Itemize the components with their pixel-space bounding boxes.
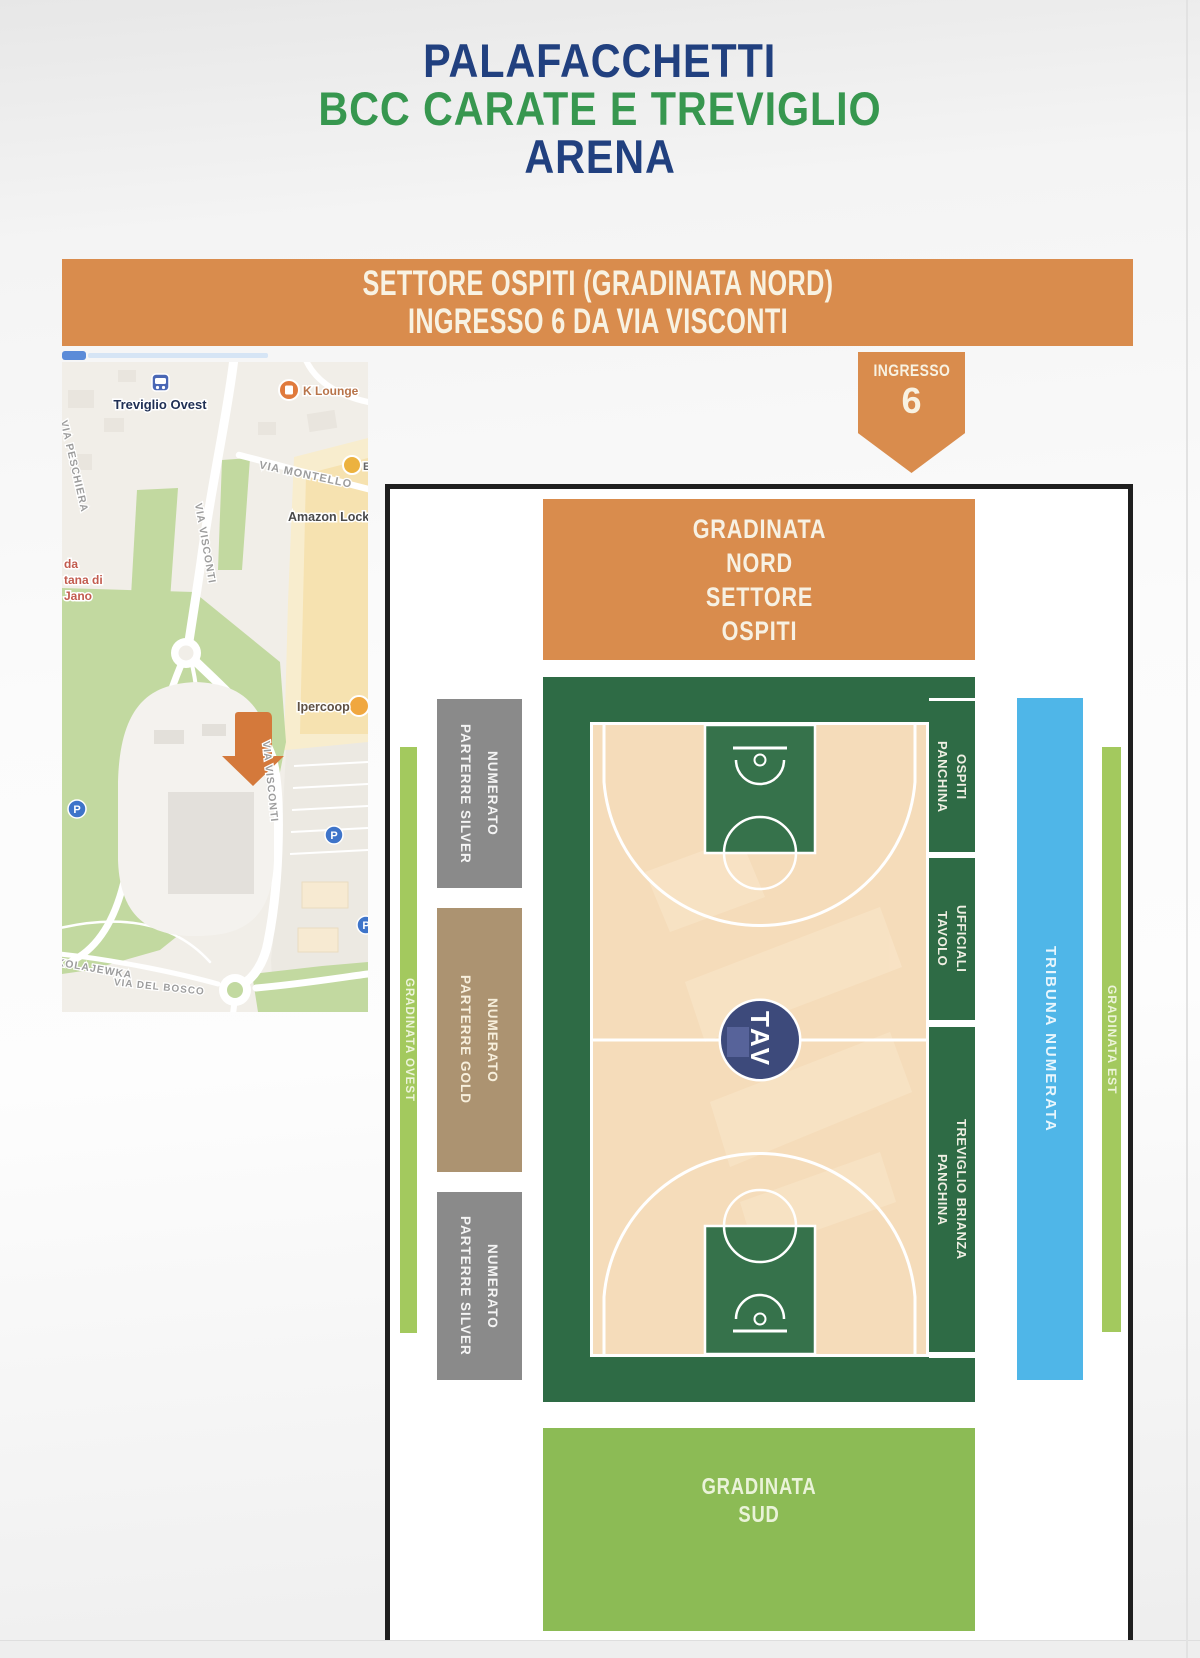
section-tavolo-ufficiali: TAVOLO UFFICIALI	[929, 858, 975, 1020]
map-arena-annex	[154, 730, 184, 744]
page-title-line3: ARENA	[0, 132, 1200, 182]
parterre-silver-top-line2: NUMERATO	[479, 699, 506, 888]
tavolo-line1: TAVOLO	[933, 858, 952, 1020]
page-title-line1: PALAFACCHETTI	[0, 36, 1200, 86]
gradinata-ovest-label: GRADINATA OVEST	[400, 747, 417, 1333]
gradinata-nord-line3: SETTORE	[692, 580, 826, 614]
section-gradinata-est: GRADINATA EST	[1102, 747, 1121, 1332]
map-label-place-red1: da	[64, 557, 78, 571]
map-ui-fragment	[62, 351, 86, 360]
gradinata-sud-line2: SUD	[586, 1500, 932, 1528]
entrance-badge-number: 6	[901, 381, 921, 421]
section-parterre-silver-top: PARTERRE SILVER NUMERATO	[437, 699, 522, 888]
section-tribuna-numerata: TRIBUNA NUMERATA	[1017, 698, 1083, 1380]
ec-poi-icon	[343, 456, 361, 474]
parterre-silver-bottom-line2: NUMERATO	[479, 1192, 506, 1380]
section-gradinata-sud: GRADINATA SUD	[543, 1428, 975, 1631]
panchina-ospiti-line1: PANCHINA	[933, 701, 952, 852]
ipercoop-poi-icon	[349, 696, 368, 716]
map-label-klounge: K Lounge	[303, 384, 359, 398]
map-label-ipercoop: Ipercoop	[297, 700, 350, 714]
section-parterre-silver-bottom: PARTERRE SILVER NUMERATO	[437, 1192, 522, 1380]
bench-separator	[929, 1020, 975, 1027]
section-panchina-ospiti: PANCHINA OSPITI	[929, 701, 975, 852]
parterre-gold-line2: NUMERATO	[479, 908, 506, 1172]
bench-separator	[929, 1352, 975, 1358]
section-gradinata-nord: GRADINATA NORD SETTORE OSPITI	[543, 499, 975, 660]
panchina-treviglio-line2: TREVIGLIO BRIANZA	[952, 1027, 971, 1352]
tavolo-line2: UFFICIALI	[952, 858, 971, 1020]
parterre-gold-line1: PARTERRE GOLD	[452, 908, 479, 1172]
parking-icon-letter: P	[73, 804, 80, 816]
panchina-ospiti-line2: OSPITI	[952, 701, 971, 852]
location-map: P P P Treviglio Ovest K Lounge Ec Amazon…	[62, 362, 368, 1012]
map-label-amazon: Amazon Locker	[288, 510, 368, 524]
map-ui-fragment-bar	[88, 353, 268, 358]
klounge-poi-icon	[279, 380, 299, 400]
center-logo-text: TAV	[721, 1001, 799, 1079]
map-label-place-red3: Jano	[64, 589, 92, 603]
parterre-silver-top-line1: PARTERRE SILVER	[452, 699, 479, 888]
sector-banner: SETTORE OSPITI (GRADINATA NORD) INGRESSO…	[62, 259, 1133, 346]
page-footer-band	[0, 1640, 1200, 1658]
gradinata-nord-line2: NORD	[692, 546, 826, 580]
gradinata-nord-line1: GRADINATA	[692, 512, 826, 546]
entrance-badge-label: INGRESSO	[873, 361, 950, 381]
banner-line1: SETTORE OSPITI (GRADINATA NORD)	[362, 265, 833, 303]
map-label-place-red2: tana di	[64, 573, 103, 587]
entrance-badge: INGRESSO 6	[858, 352, 965, 473]
poster-page: PALAFACCHETTI BCC CARATE E TREVIGLIO ARE…	[0, 0, 1200, 1658]
panchina-treviglio-line1: PANCHINA	[933, 1027, 952, 1352]
gradinata-sud-line1: GRADINATA	[586, 1472, 932, 1500]
banner-line2: INGRESSO 6 DA VIA VISCONTI	[362, 303, 833, 341]
parking-icon-letter: P	[362, 920, 368, 932]
center-logo: TAV	[719, 999, 801, 1081]
parterre-silver-bottom-line1: PARTERRE SILVER	[452, 1192, 479, 1380]
section-gradinata-ovest: GRADINATA OVEST	[400, 747, 417, 1333]
map-arena-roof	[168, 792, 254, 894]
page-title-line2: BCC CARATE E TREVIGLIO	[0, 84, 1200, 134]
map-building	[298, 928, 338, 952]
map-building	[302, 882, 348, 908]
map-ipercoop-building	[300, 458, 368, 734]
gradinata-nord-line4: OSPITI	[692, 614, 826, 648]
train-station-icon	[152, 374, 169, 391]
gradinata-est-label: GRADINATA EST	[1102, 747, 1121, 1332]
arena-diagram: GRADINATA NORD SETTORE OSPITI	[385, 484, 1133, 1650]
map-label-ec: Ec	[363, 461, 368, 473]
parking-icon-letter: P	[330, 830, 337, 842]
tribuna-numerata-label: TRIBUNA NUMERATA	[1017, 698, 1083, 1380]
map-label-station: Treviglio Ovest	[113, 397, 207, 412]
map-canvas: P P P Treviglio Ovest K Lounge Ec Amazon…	[62, 362, 368, 1012]
section-parterre-gold: PARTERRE GOLD NUMERATO	[437, 908, 522, 1172]
map-arena-annex	[202, 724, 226, 736]
section-panchina-treviglio: PANCHINA TREVIGLIO BRIANZA	[929, 1027, 975, 1352]
